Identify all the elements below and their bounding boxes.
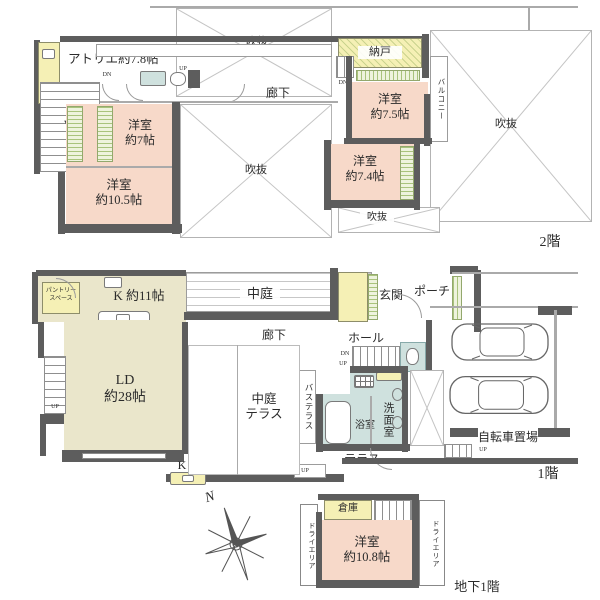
stair-up-label: UP — [174, 66, 192, 72]
bedroom-7-label: 洋室 約7帖 — [110, 118, 170, 147]
wall — [62, 224, 182, 233]
wall — [316, 580, 418, 588]
floor2-label: 2階 — [526, 234, 574, 251]
door-arc — [126, 84, 143, 101]
void-right-label: 吹抜 — [487, 118, 525, 131]
corridor-1f-label: 廊下 — [254, 328, 294, 343]
wall — [172, 102, 180, 234]
stair-dn-label: DN — [336, 351, 354, 357]
wall — [188, 70, 200, 88]
wall — [326, 200, 418, 208]
car-icon — [450, 318, 550, 366]
bedroom-10-5-label: 洋室 約10.5帖 — [76, 178, 162, 209]
washing-machine-icon — [354, 375, 374, 388]
bathtub-icon — [325, 401, 351, 444]
shelf-icon — [42, 49, 55, 59]
wall — [342, 458, 578, 464]
bath-terrace-label: バステラス — [300, 374, 314, 440]
toilet-icon — [170, 72, 186, 86]
window — [82, 453, 166, 459]
bicycle-parking-label: 自転車置場 — [470, 430, 546, 445]
toilet-icon — [406, 348, 419, 365]
wall — [184, 312, 336, 320]
dry-area-left-label: ドライエリア — [302, 510, 316, 582]
wall — [40, 424, 46, 456]
parking-boundary — [554, 310, 557, 432]
wall — [350, 366, 404, 373]
porch-label: ポーチ — [408, 284, 456, 299]
wall — [318, 444, 410, 451]
car-icon — [448, 370, 550, 420]
door-arc — [102, 84, 119, 101]
exterior-stair — [444, 444, 472, 458]
bedroom-10-8-label: 洋室 約10.8帖 — [326, 535, 408, 566]
storage-label: 倉庫 — [328, 503, 368, 515]
bedroom-7-4-label: 洋室 約7.4帖 — [334, 154, 396, 183]
closet — [67, 106, 83, 162]
courtyard-label: 中庭 — [240, 286, 280, 302]
bath-entry — [322, 372, 350, 394]
stair-up-label: UP — [46, 404, 64, 410]
compass-icon — [196, 500, 276, 584]
entrance-floor — [338, 272, 368, 322]
porch-step — [452, 276, 462, 320]
sink-icon — [140, 71, 166, 86]
basement-label: 地下1階 — [446, 579, 508, 595]
bath-partition-line — [370, 396, 372, 444]
closet — [356, 70, 420, 81]
storeroom-label: 納戸 — [358, 46, 402, 59]
wall — [38, 322, 44, 358]
vanity-counter — [376, 372, 402, 381]
wall — [40, 414, 64, 424]
balcony-label: バルコニー — [432, 60, 446, 138]
floor-plan: 吹抜 吹抜 吹抜 吹抜 アトリエ約7.8帖 DN UP ▼ 洋室 約7帖 洋室 … — [0, 0, 600, 600]
kitchen-label: K 約11帖 — [95, 288, 183, 304]
hall-label: ホール — [342, 331, 390, 346]
corridor-2f-label: 廊下 — [258, 86, 298, 101]
roof-outline-line — [528, 6, 530, 32]
light-well — [410, 370, 444, 446]
courtyard-terrace-label: 中庭 テラス — [240, 392, 288, 423]
stair-up-label: UP — [474, 447, 492, 453]
closet — [400, 146, 414, 200]
wall — [412, 494, 419, 588]
bathroom-label: 浴室 — [350, 420, 380, 432]
wall — [426, 320, 432, 374]
floor1-label: 1階 — [524, 466, 572, 483]
wall — [402, 366, 408, 452]
corridor-wall-line — [100, 101, 338, 103]
living-label: LD 約28帖 — [94, 372, 156, 406]
bedroom-7-5-label: 洋室 約7.5帖 — [360, 92, 420, 121]
dry-area-right-label: ドライエリア — [424, 508, 440, 580]
terrace-division-line — [237, 345, 238, 475]
sink-icon — [182, 475, 194, 482]
wall — [330, 268, 338, 320]
wall — [422, 34, 429, 78]
site-line — [452, 272, 578, 274]
wall — [346, 56, 352, 148]
stair-dn-label: DN — [98, 72, 116, 78]
void-center-label: 吹抜 — [236, 164, 276, 177]
atelier-counter — [96, 44, 332, 57]
stove-icon — [104, 277, 122, 288]
void-strip-label: 吹抜 — [360, 212, 394, 224]
